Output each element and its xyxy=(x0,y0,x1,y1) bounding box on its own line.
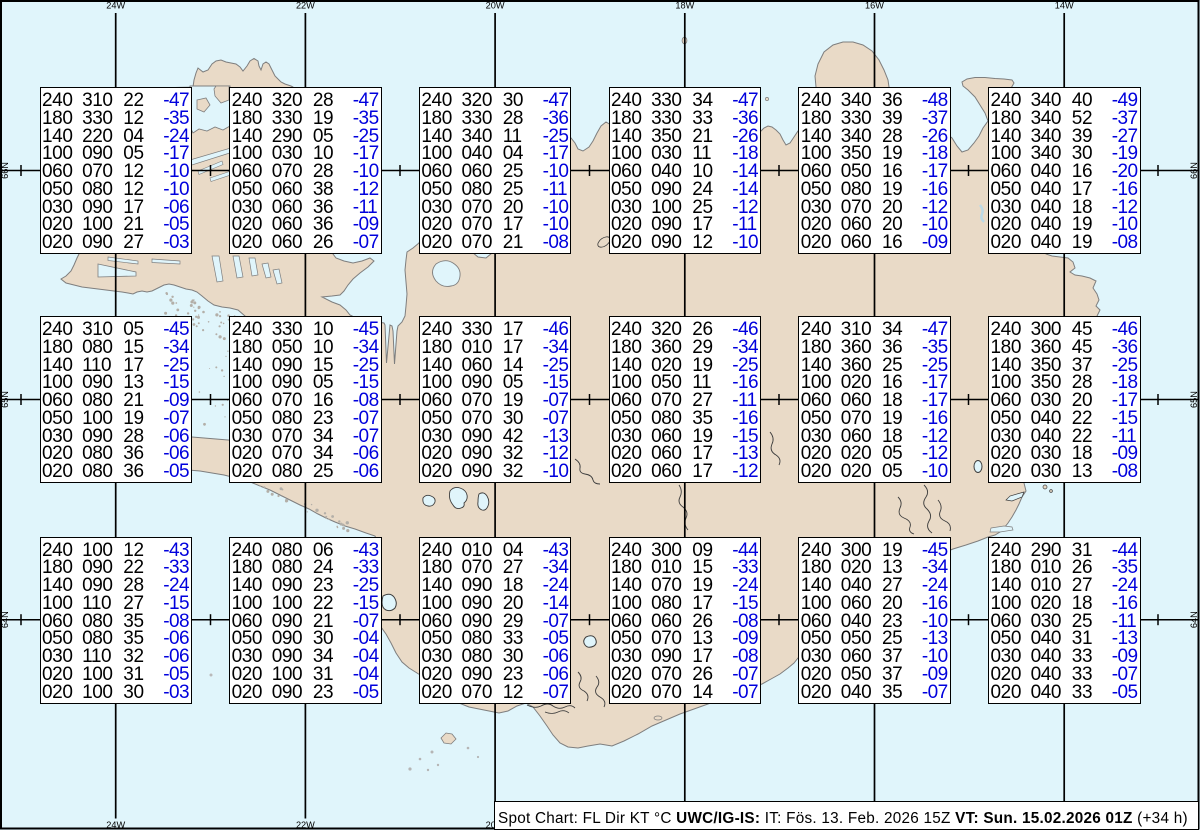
svg-text:65N: 65N xyxy=(0,391,10,408)
svg-text:22W: 22W xyxy=(296,820,315,830)
svg-text:16W: 16W xyxy=(865,1,884,11)
svg-text:64N: 64N xyxy=(1189,611,1199,628)
svg-text:66N: 66N xyxy=(1189,162,1199,179)
svg-text:24W: 24W xyxy=(106,820,125,830)
svg-text:65N: 65N xyxy=(1189,391,1199,408)
svg-text:14W: 14W xyxy=(1055,1,1074,11)
svg-text:24W: 24W xyxy=(106,1,125,11)
svg-text:66N: 66N xyxy=(0,162,10,179)
svg-text:18W: 18W xyxy=(675,1,694,11)
svg-text:64N: 64N xyxy=(0,611,10,628)
svg-text:20W: 20W xyxy=(486,1,505,11)
svg-text:22W: 22W xyxy=(296,1,315,11)
